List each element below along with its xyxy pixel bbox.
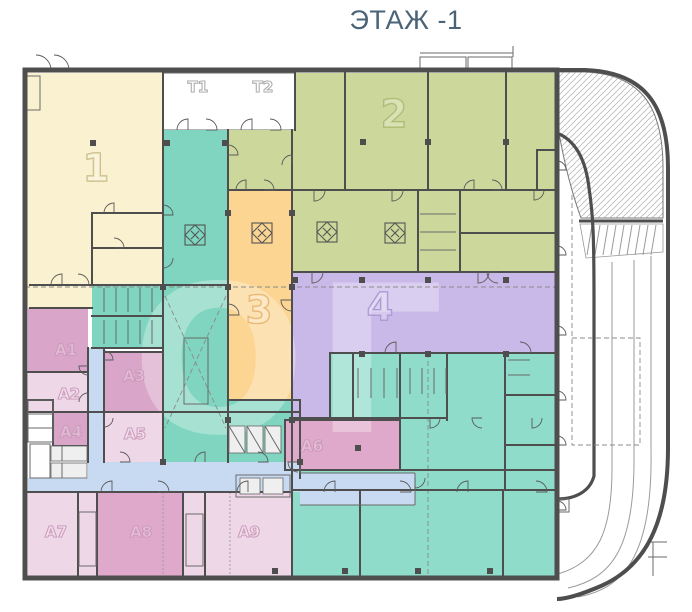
column-marker (160, 459, 166, 465)
column-marker (222, 140, 228, 146)
t-lobby-area (163, 73, 295, 130)
column-marker (359, 277, 365, 283)
column-marker (289, 417, 295, 423)
zone-a6-label: A6 (301, 437, 323, 455)
column-marker (425, 351, 431, 357)
louver-grille (468, 57, 512, 68)
zone-a3-label: A3 (123, 367, 145, 385)
floor-plan-svg: ОГ (0, 0, 692, 612)
zone-a2-label: A2 (58, 385, 80, 403)
parking-ramp (557, 70, 668, 599)
column-marker (342, 568, 348, 574)
zone-2-label: 2 (381, 92, 407, 136)
column-marker (415, 568, 421, 574)
column-marker (425, 139, 431, 145)
zone-a4-label: A4 (60, 423, 82, 441)
zone-4-label: 4 (367, 285, 393, 329)
column-marker (164, 140, 170, 146)
zone-a8-label: A8 (130, 523, 152, 541)
zone-1-label: 1 (83, 146, 109, 190)
zone-a5-label: A5 (124, 425, 146, 443)
column-marker (359, 351, 365, 357)
louver-outline (420, 46, 513, 57)
zone-t2-label: T2 (253, 78, 274, 96)
floor-plan-page: ЭТАЖ -1 (0, 0, 692, 612)
column-marker (289, 284, 295, 290)
column-marker (297, 459, 303, 465)
column-marker (503, 277, 509, 283)
column-marker (225, 284, 231, 290)
stairwell-a-area (78, 492, 97, 578)
elevator-car (263, 478, 283, 494)
column-marker (292, 277, 298, 283)
zone-t1-label: T1 (188, 78, 209, 96)
column-marker (225, 417, 231, 423)
zone-a1-area (28, 308, 88, 372)
column-marker (503, 351, 509, 357)
elevator-car (51, 446, 87, 461)
column-marker (360, 139, 366, 145)
column-marker (355, 445, 361, 451)
ramp-corner-detail (648, 542, 667, 576)
elevator-car (240, 478, 260, 494)
zone-a9-label: A9 (238, 523, 260, 541)
column-marker (487, 568, 493, 574)
column-marker (425, 277, 431, 283)
louver-grille (420, 57, 466, 68)
elevator-car (51, 463, 87, 478)
zone-a7-label: A7 (45, 523, 67, 541)
column-marker (289, 210, 295, 216)
column-marker (225, 210, 231, 216)
zone-a1-label: A1 (55, 341, 77, 359)
corridor-vertical (88, 348, 104, 462)
column-marker (272, 568, 278, 574)
column-marker (160, 284, 166, 290)
zone-3-label: 3 (246, 288, 272, 332)
column-marker (503, 139, 509, 145)
